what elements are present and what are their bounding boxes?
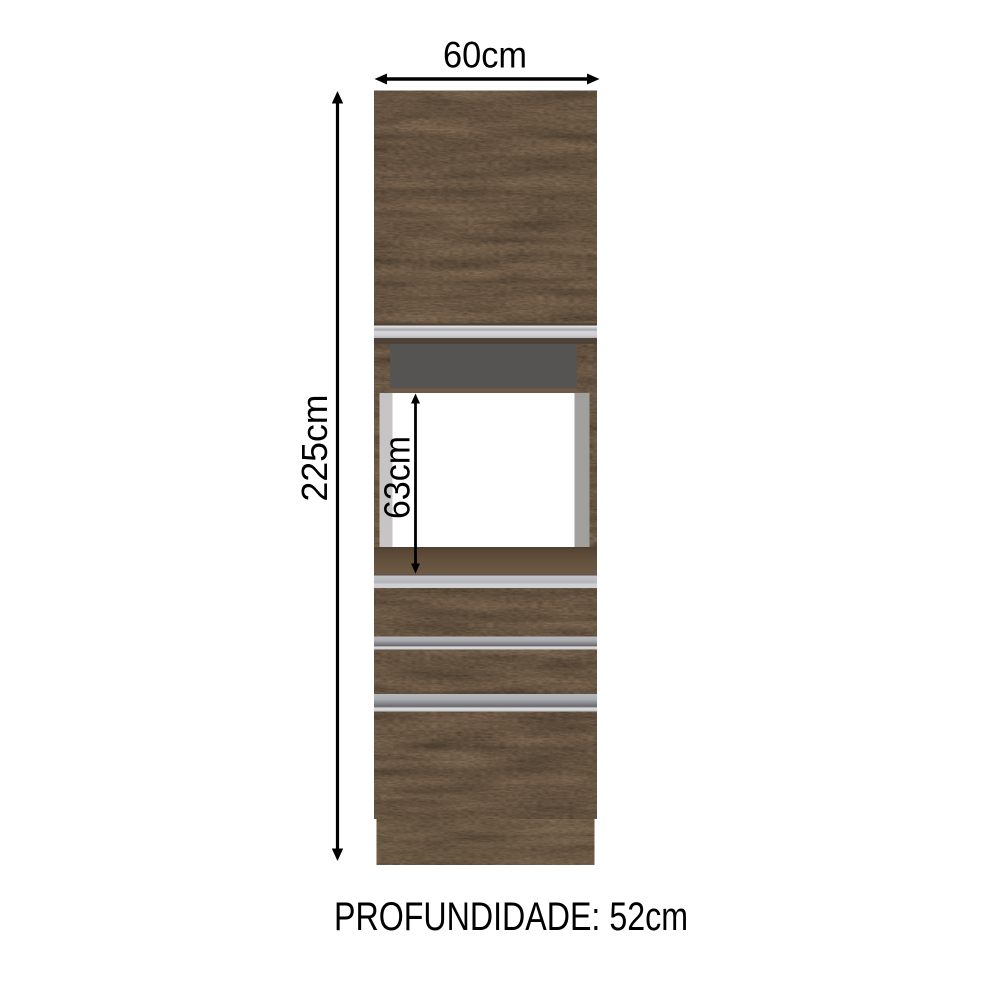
svg-text:PROFUNDIDADE: 52cm: PROFUNDIDADE: 52cm (334, 895, 688, 939)
svg-text:60cm: 60cm (443, 35, 527, 76)
svg-text:225cm: 225cm (294, 395, 335, 502)
svg-text:63cm: 63cm (377, 436, 418, 519)
